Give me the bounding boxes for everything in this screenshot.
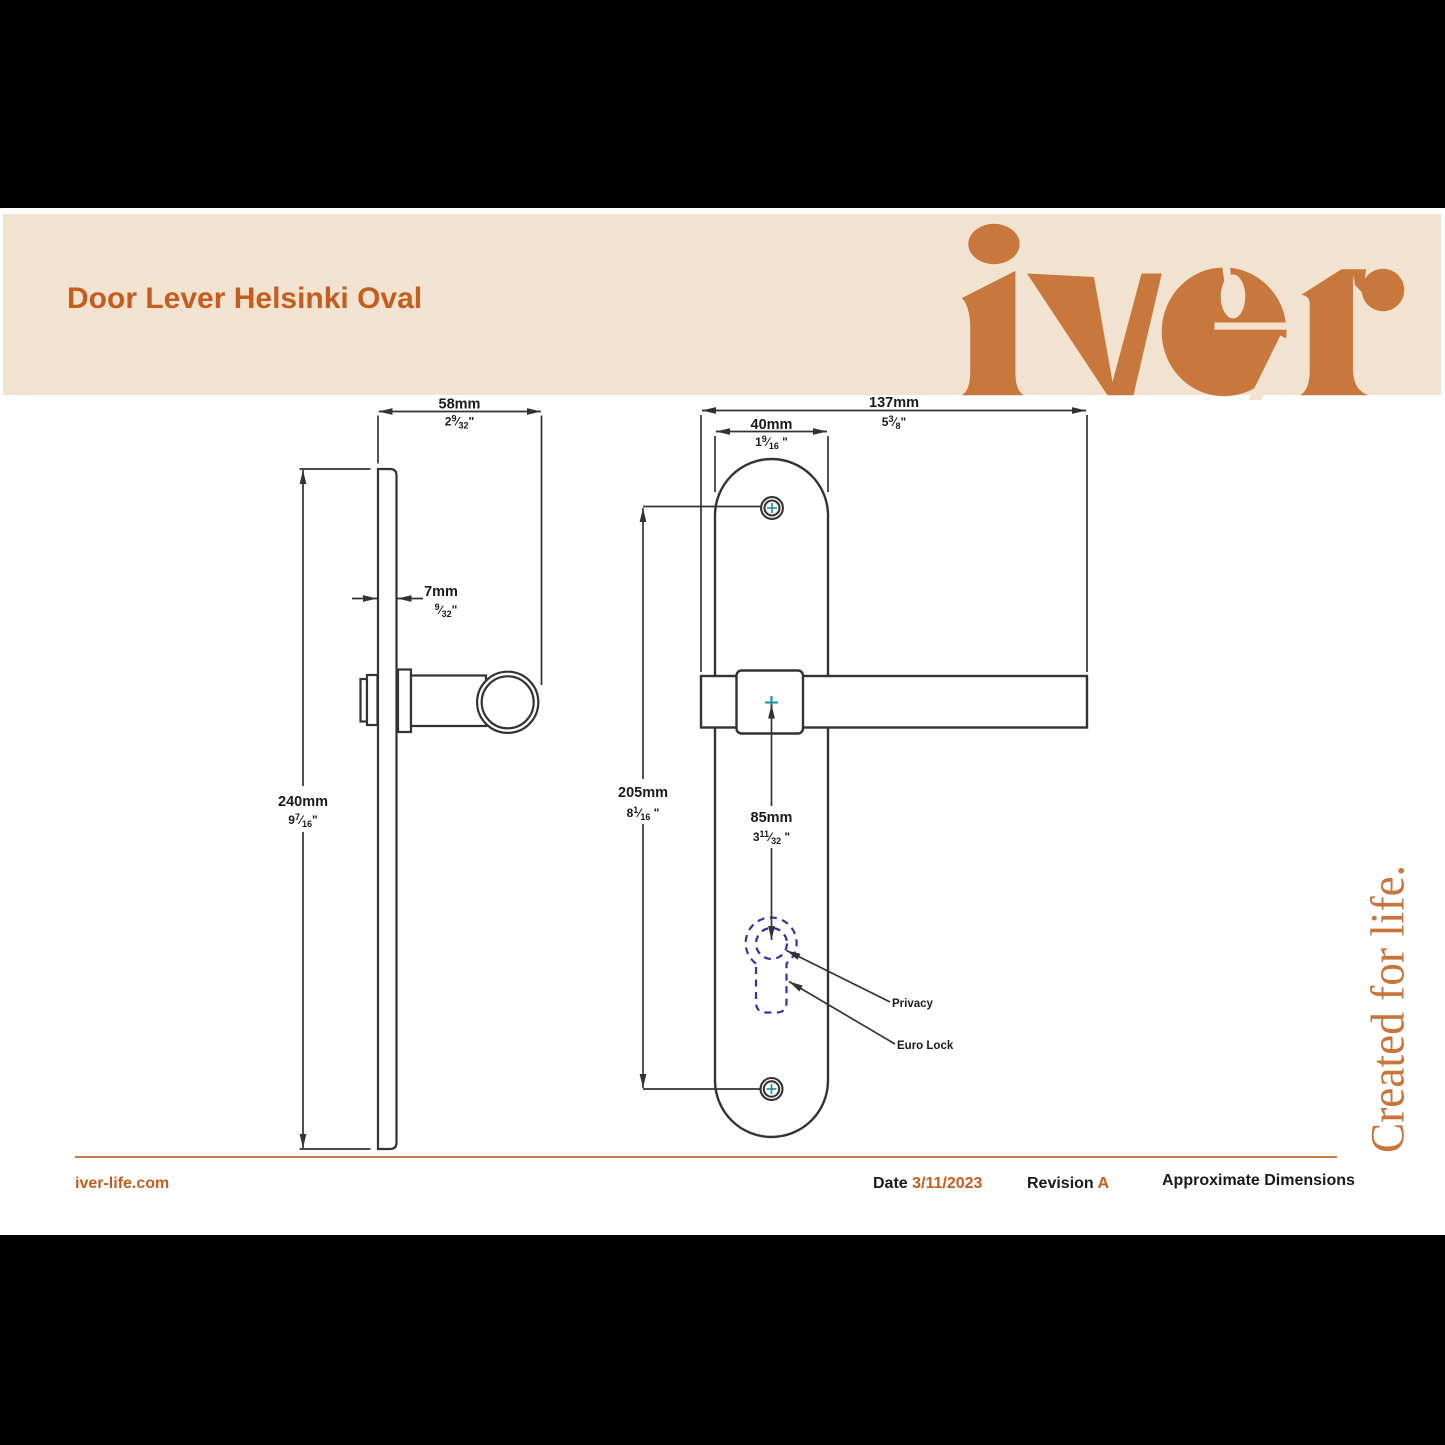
svg-text:9⁄32": 9⁄32"	[435, 602, 458, 619]
svg-text:Privacy: Privacy	[892, 998, 934, 1010]
svg-text:7mm: 7mm	[424, 584, 458, 600]
svg-text:53⁄8": 53⁄8"	[882, 414, 906, 431]
svg-text:29⁄32": 29⁄32"	[445, 414, 474, 431]
svg-text:240mm: 240mm	[278, 794, 328, 810]
svg-text:Euro Lock: Euro Lock	[897, 1040, 954, 1052]
svg-text:137mm: 137mm	[869, 395, 919, 411]
svg-text:40mm: 40mm	[751, 417, 793, 433]
svg-text:19⁄16 ": 19⁄16 "	[755, 434, 788, 451]
svg-text:85mm: 85mm	[751, 810, 793, 826]
svg-text:58mm: 58mm	[439, 397, 481, 413]
svg-text:205mm: 205mm	[618, 785, 668, 801]
